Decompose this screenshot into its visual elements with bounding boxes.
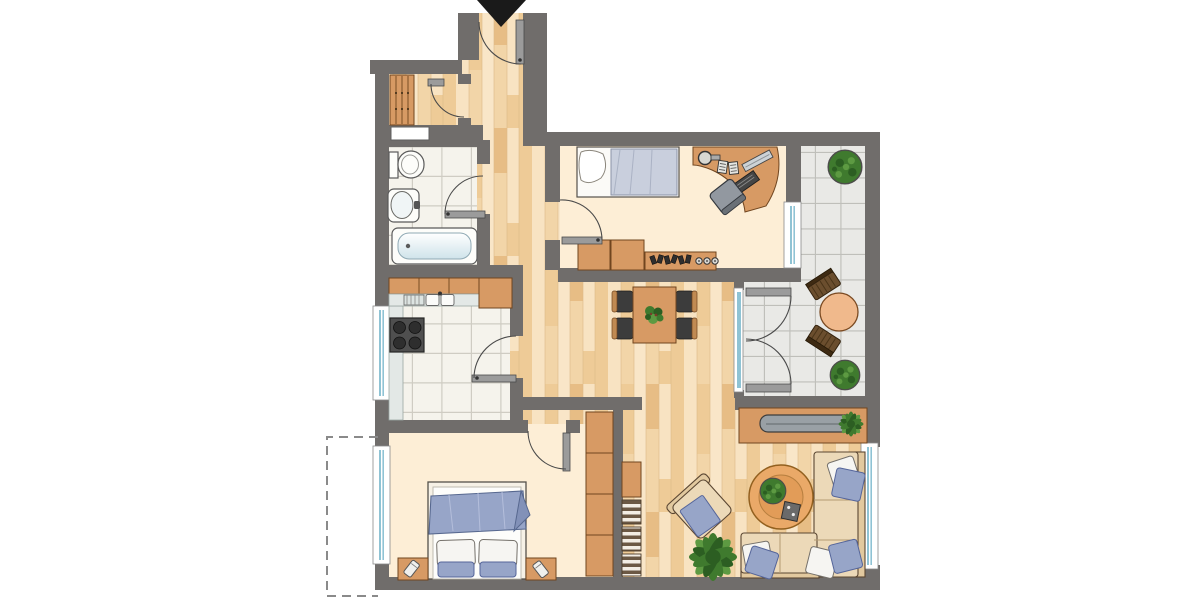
kitchen-cabinets xyxy=(389,278,479,294)
wall-top-band xyxy=(523,132,880,146)
single-bed xyxy=(577,147,679,197)
wall-bath-right-bottom xyxy=(477,214,490,267)
bed-blanket xyxy=(429,491,526,534)
storage-nook xyxy=(390,75,414,125)
wall-left-outer-lower xyxy=(375,562,389,590)
faucet-icon xyxy=(414,201,420,209)
stove xyxy=(390,318,424,352)
balcony-table xyxy=(820,293,858,331)
window-bedroom-top xyxy=(784,202,801,268)
sink-basin-right xyxy=(441,295,454,306)
wall-bedroom-door-stub xyxy=(566,420,580,433)
washbasin xyxy=(388,189,420,222)
pillow-blue-right xyxy=(480,562,516,577)
bathtub xyxy=(392,228,477,264)
wall-hall-living xyxy=(520,397,642,410)
coffee-table xyxy=(749,465,813,529)
desk-lamp-arm xyxy=(711,155,720,160)
desk-papers xyxy=(717,160,728,173)
lowboard-plant xyxy=(839,412,864,437)
wall-left-outer-mid xyxy=(375,398,389,450)
built-in-wardrobe xyxy=(586,412,613,576)
corner-cabinet xyxy=(479,278,512,308)
wall-bath-right-top xyxy=(477,140,490,164)
wall-entry-right-jamb xyxy=(523,13,547,132)
floor-plan-stage xyxy=(0,0,1200,600)
coffee-table-tray xyxy=(781,502,800,522)
bookshelf xyxy=(622,462,641,576)
french-door-glass xyxy=(734,288,743,392)
floor-plan-drawing xyxy=(0,0,1200,600)
desk-lamp xyxy=(699,152,712,165)
wall-kitchen-bottom xyxy=(375,420,528,433)
potted-plant-top xyxy=(828,150,862,184)
wall-storage-right-a xyxy=(458,74,471,84)
wall-bedroom-top-left-a xyxy=(545,146,560,202)
sink-basin-left xyxy=(426,295,439,306)
sideboard-knobs xyxy=(696,258,718,264)
wall-entry-left-jamb xyxy=(458,13,479,60)
wall-bath-bottom xyxy=(375,265,523,278)
double-bed xyxy=(428,482,530,579)
kitchen-faucet-icon xyxy=(438,292,442,296)
bed-pillow xyxy=(579,150,606,182)
wall-niche xyxy=(391,127,429,140)
window-bedroom-bottom xyxy=(373,446,390,564)
potted-plant-bottom xyxy=(830,360,859,389)
coffee-table-plant xyxy=(760,478,786,504)
toilet xyxy=(389,151,424,178)
exterior-top-left xyxy=(386,0,462,62)
optional-area-dashed-outline xyxy=(327,437,378,596)
wall-balcony-outer xyxy=(865,132,880,410)
window-kitchen xyxy=(373,306,390,400)
exterior-top-right xyxy=(547,0,880,132)
drain-icon xyxy=(406,244,410,248)
pillow-blue-left xyxy=(438,562,474,577)
wall-bedroom-top-right xyxy=(786,146,801,204)
desk-book xyxy=(728,162,738,175)
wall-bedroom-top-left-b xyxy=(545,240,560,270)
floor-plant xyxy=(689,533,737,581)
